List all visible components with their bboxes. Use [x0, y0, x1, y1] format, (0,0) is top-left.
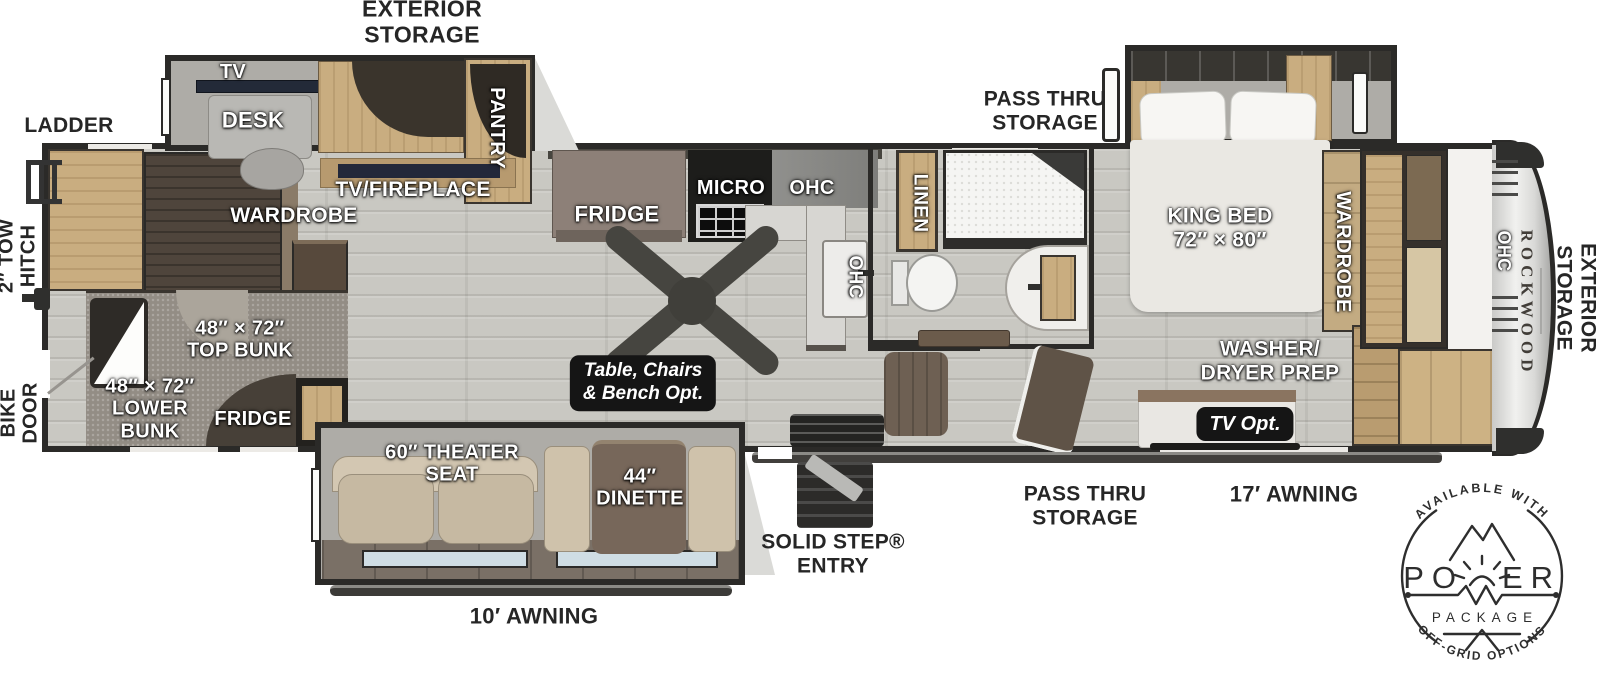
hall-chair — [884, 352, 948, 436]
dinette-bench — [544, 446, 590, 552]
label-linen: LINEN — [909, 174, 930, 233]
ladder-icon — [26, 160, 62, 204]
living-slide-side-window — [311, 468, 321, 542]
label-wardrobe-bedroom: WARDROBE — [1332, 191, 1354, 312]
label-bunk-fridge: FRIDGE — [214, 408, 291, 430]
label-tv-opt: TV Opt. — [1196, 407, 1293, 441]
sun-icon — [1470, 577, 1494, 586]
label-pass-thru-front: PASS THRU STORAGE — [984, 87, 1107, 134]
rear-slide-window — [161, 78, 171, 136]
rear-wardrobe-cabinet — [48, 149, 144, 291]
slide-window — [362, 550, 528, 568]
counter-tip — [806, 345, 846, 351]
desk-chair — [240, 148, 304, 190]
dinette-bench — [688, 446, 736, 552]
label-ohc-side: OHC — [844, 255, 865, 298]
rear-tv-strip — [196, 80, 322, 93]
label-tow-hitch: 2″ TOW HITCH — [0, 219, 40, 293]
badge-available-with: AVAILABLE WITH — [1412, 482, 1552, 522]
hall-desk — [918, 330, 1010, 347]
rear-slide-shadow — [535, 58, 579, 151]
label-king-bed: KING BED 72″ × 80″ — [1167, 204, 1272, 251]
pillow — [1229, 91, 1317, 148]
pillow — [1139, 91, 1227, 148]
label-ohc-top: OHC — [789, 177, 834, 199]
label-awning-main: 17′ AWNING — [1230, 483, 1358, 508]
label-exterior-storage-top: EXTERIOR STORAGE — [362, 0, 482, 48]
tow-hitch-icon-bar — [22, 294, 36, 302]
front-closet-glass — [1406, 155, 1442, 241]
cap-corner-bottom — [1496, 428, 1544, 454]
front-ohc-dashes — [1492, 296, 1518, 332]
badge-power-suffix: ER — [1502, 560, 1561, 595]
label-desk: DESK — [222, 109, 284, 134]
tv-fireplace-strip — [338, 164, 500, 178]
svg-text:AVAILABLE WITH: AVAILABLE WITH — [1412, 482, 1552, 522]
tv-stand-back — [1138, 390, 1296, 402]
front-closet-glass2 — [1406, 247, 1442, 343]
window-slit — [130, 447, 218, 452]
front-ohc-strip — [1448, 149, 1494, 349]
label-solid-step: SOLID STEP® ENTRY — [761, 530, 905, 577]
label-exterior-storage-front: EXTERIOR STORAGE — [1552, 243, 1599, 353]
window-slit — [240, 447, 298, 452]
label-micro: MICRO — [697, 177, 765, 199]
badge-power-prefix: PO — [1403, 560, 1464, 595]
label-bike-door: BIKE DOOR — [0, 382, 42, 443]
rv-floorplan: EXTERIOR STORAGE LADDER 2″ TOW HITCH BIK… — [0, 0, 1600, 676]
label-ohc-front: OHC — [1494, 231, 1514, 272]
awning-rear-bar — [330, 585, 732, 596]
tv-screen-line — [1150, 443, 1300, 450]
label-table-option: Table, Chairs & Bench Opt. — [570, 355, 716, 411]
label-theater-seat: 60″ THEATER SEAT — [385, 442, 519, 487]
label-tv-rear: TV — [220, 61, 246, 83]
label-washer-dryer: WASHER/ DRYER PREP — [1201, 337, 1340, 384]
svg-text:OFF-GRID OPTIONS: OFF-GRID OPTIONS — [1415, 622, 1549, 663]
bedroom-slide-window — [1352, 72, 1368, 134]
label-pantry: PANTRY — [486, 87, 508, 169]
label-lower-bunk: 48″ × 72″ LOWER BUNK — [105, 375, 194, 442]
vanity-cabinet — [1040, 255, 1076, 321]
label-wardrobe-rear: WARDROBE — [230, 204, 357, 228]
front-dresser — [1398, 349, 1494, 446]
brand-rockwood: ROCKWOOD — [1517, 230, 1536, 377]
mountains-icon — [1450, 524, 1514, 560]
label-tv-fireplace: TV/FIREPLACE — [335, 178, 490, 202]
entry-grate — [790, 414, 884, 447]
power-package-badge: AVAILABLE WITH OFF-GRID OPTIONS PO ER PA… — [1388, 482, 1576, 670]
label-ladder: LADDER — [24, 114, 113, 138]
sun-ray — [1464, 562, 1470, 569]
label-pass-thru-mid: PASS THRU STORAGE — [1024, 482, 1147, 529]
label-kitchen-fridge: FRIDGE — [575, 203, 660, 228]
label-dinette: 44″ DINETTE — [596, 466, 684, 511]
entry-door-opening — [758, 447, 792, 459]
badge-package: PACKAGE — [1432, 610, 1538, 625]
sun-ray — [1494, 562, 1500, 569]
label-awning-rear: 10′ AWNING — [470, 605, 598, 630]
front-closet-shelves — [1366, 155, 1402, 343]
label-top-bunk: 48″ × 72″ TOP BUNK — [187, 318, 293, 363]
front-ohc-dashes — [1492, 160, 1518, 196]
vanity-faucet — [1028, 284, 1042, 290]
brand-subline — [1540, 268, 1542, 334]
fan-hub — [668, 277, 716, 325]
toilet-bowl — [906, 254, 958, 312]
badge-off-grid: OFF-GRID OPTIONS — [1415, 622, 1549, 663]
